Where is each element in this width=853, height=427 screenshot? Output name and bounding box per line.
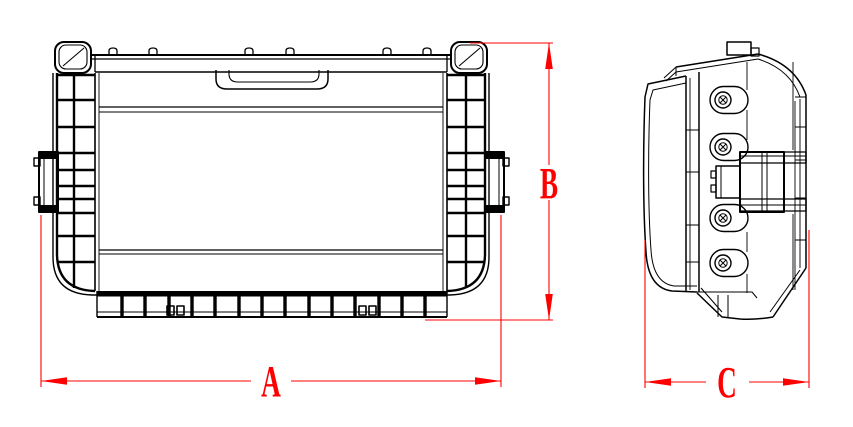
lid-band	[91, 48, 451, 72]
arrowhead-right	[783, 378, 809, 386]
arrowhead-right	[475, 377, 501, 385]
left-rib-column	[53, 73, 99, 295]
dimension-label-C: C	[717, 357, 737, 406]
dimension-label-B: B	[540, 158, 558, 207]
side-handle-stub	[727, 42, 751, 55]
stack-bump	[383, 48, 391, 55]
corner-bumper-top-right	[451, 42, 487, 73]
linework	[34, 42, 806, 319]
side-view	[644, 42, 806, 319]
stack-bump	[286, 48, 294, 55]
right-rib-column	[443, 73, 489, 295]
hinge-rib-band	[686, 72, 699, 292]
arrowhead-up	[545, 43, 553, 69]
dimension-label-A: A	[261, 356, 281, 405]
base-clip	[177, 306, 184, 315]
stack-bump	[423, 48, 431, 55]
screw-boss	[710, 87, 748, 114]
solid-accents	[39, 152, 504, 296]
dimension-lines	[41, 43, 809, 388]
feet-band-top-bar	[97, 291, 447, 296]
stack-bump	[109, 48, 117, 55]
screw-boss	[710, 205, 748, 232]
screw-boss	[710, 250, 748, 277]
base-clip	[359, 306, 366, 315]
body-seams	[99, 107, 443, 254]
arrowhead-left	[41, 377, 67, 385]
technical-drawing-canvas: A B C	[0, 0, 853, 427]
corner-bumper-top-left	[55, 42, 91, 73]
left-latch	[34, 152, 58, 212]
stack-bump	[245, 48, 253, 55]
base-clip	[369, 306, 376, 315]
side-lid-shell	[644, 76, 697, 292]
left-latch-bottom-bar	[39, 205, 58, 212]
arrowhead-left	[645, 378, 671, 386]
right-latch-bottom-bar	[485, 205, 504, 212]
arrowhead-down	[545, 294, 553, 320]
stack-bump	[149, 48, 157, 55]
handle	[216, 70, 328, 89]
front-view	[34, 42, 509, 317]
case-engineering-drawing: A B C	[0, 0, 853, 427]
right-latch-top-bar	[485, 152, 504, 159]
left-latch-top-bar	[39, 152, 58, 159]
